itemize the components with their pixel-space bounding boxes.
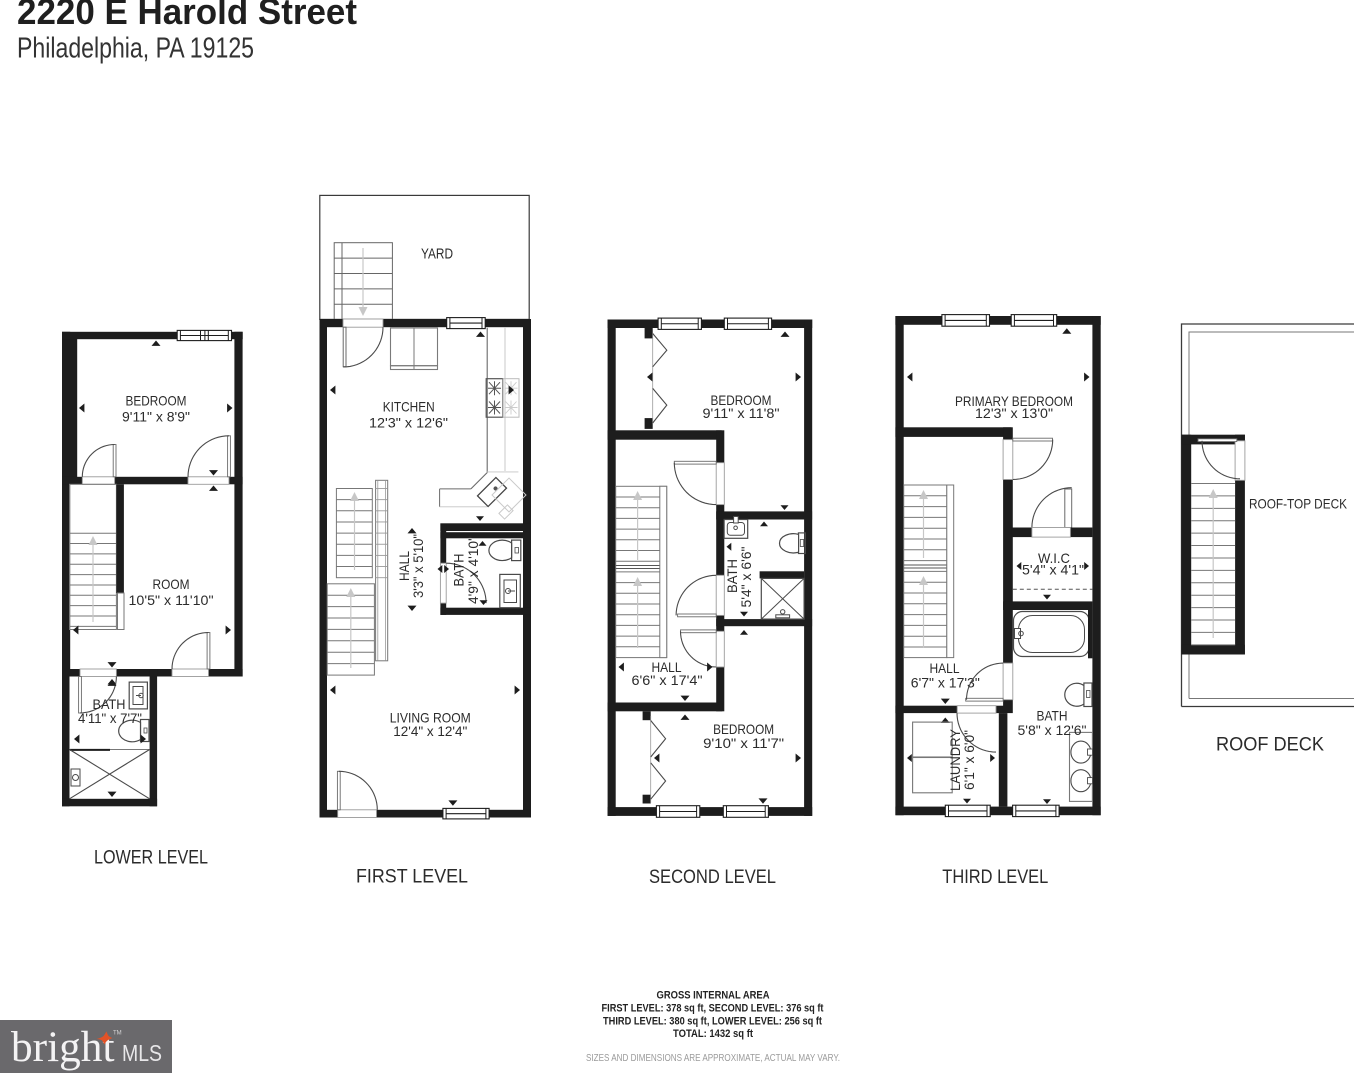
svg-text:FIRST LEVEL: 378 sq ft, SECOND: FIRST LEVEL: 378 sq ft, SECOND LEVEL: 37… bbox=[602, 1003, 824, 1015]
svg-text:9'11" x 8'9": 9'11" x 8'9" bbox=[122, 409, 190, 425]
svg-text:12'3" x 13'0": 12'3" x 13'0" bbox=[975, 405, 1053, 421]
svg-text:SIZES AND DIMENSIONS ARE APPRO: SIZES AND DIMENSIONS ARE APPROXIMATE, AC… bbox=[586, 1052, 840, 1064]
svg-text:4'9" x 4'10": 4'9" x 4'10" bbox=[465, 536, 481, 604]
svg-text:THIRD LEVEL: 380 sq ft, LOWER: THIRD LEVEL: 380 sq ft, LOWER LEVEL: 256… bbox=[603, 1016, 822, 1028]
svg-text:Philadelphia, PA 19125: Philadelphia, PA 19125 bbox=[17, 33, 254, 65]
svg-text:4'11" x 7'7": 4'11" x 7'7" bbox=[78, 710, 142, 726]
svg-text:9'10" x 11'7": 9'10" x 11'7" bbox=[703, 735, 784, 751]
svg-text:6'7" x 17'3": 6'7" x 17'3" bbox=[911, 675, 980, 691]
svg-text:SECOND LEVEL: SECOND LEVEL bbox=[649, 866, 776, 888]
svg-text:ROOF-TOP DECK: ROOF-TOP DECK bbox=[1249, 496, 1348, 512]
svg-text:TOTAL: 1432 sq ft: TOTAL: 1432 sq ft bbox=[673, 1028, 753, 1040]
svg-text:ROOM: ROOM bbox=[153, 576, 190, 592]
svg-text:FIRST LEVEL: FIRST LEVEL bbox=[356, 866, 468, 888]
svg-text:10'5" x 11'10": 10'5" x 11'10" bbox=[129, 592, 214, 608]
svg-text:6'6" x 17'4": 6'6" x 17'4" bbox=[632, 672, 703, 688]
svg-text:ROOF DECK: ROOF DECK bbox=[1216, 734, 1324, 756]
svg-text:5'8" x 12'6": 5'8" x 12'6" bbox=[1018, 722, 1087, 738]
svg-text:BEDROOM: BEDROOM bbox=[126, 393, 187, 409]
svg-text:GROSS INTERNAL AREA: GROSS INTERNAL AREA bbox=[657, 990, 770, 1002]
svg-text:THIRD LEVEL: THIRD LEVEL bbox=[942, 866, 1048, 888]
svg-text:YARD: YARD bbox=[421, 247, 453, 263]
svg-text:6'1" x 6'0": 6'1" x 6'0" bbox=[961, 730, 977, 790]
svg-text:LOWER LEVEL: LOWER LEVEL bbox=[94, 847, 208, 869]
svg-text:3'3" x 5'10": 3'3" x 5'10" bbox=[410, 534, 426, 598]
svg-text:TM: TM bbox=[113, 1031, 122, 1037]
svg-text:9'11" x 11'8": 9'11" x 11'8" bbox=[703, 405, 780, 421]
svg-text:bright: bright bbox=[11, 1024, 115, 1071]
svg-text:MLS: MLS bbox=[122, 1040, 162, 1066]
svg-text:5'4" x 6'6": 5'4" x 6'6" bbox=[738, 546, 754, 607]
svg-text:12'4" x 12'4": 12'4" x 12'4" bbox=[393, 723, 467, 739]
svg-text:KITCHEN: KITCHEN bbox=[383, 399, 435, 415]
svg-text:5'4" x 4'1": 5'4" x 4'1" bbox=[1022, 562, 1084, 578]
svg-text:2220 E Harold Street: 2220 E Harold Street bbox=[17, 0, 357, 32]
svg-text:12'3" x 12'6": 12'3" x 12'6" bbox=[369, 415, 448, 431]
